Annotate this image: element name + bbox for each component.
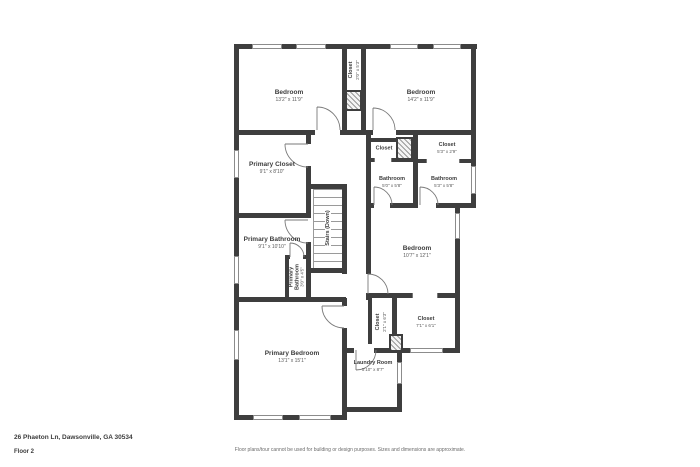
- room-label-primary-bedroom: Primary Bedroom 13'1" x 15'1": [265, 350, 320, 364]
- window: [252, 44, 282, 49]
- wall: [396, 130, 476, 135]
- wall: [361, 44, 366, 134]
- wall: [311, 268, 346, 273]
- window: [253, 415, 283, 420]
- closet-opening: [426, 159, 460, 163]
- wall: [342, 328, 347, 420]
- wall: [366, 203, 371, 274]
- window: [410, 348, 443, 353]
- disclaimer-text: Floor plans/tour cannot be used for buil…: [0, 447, 700, 453]
- wall: [413, 135, 418, 203]
- floorplan-page: Stairs (Down): [0, 0, 700, 467]
- window: [234, 150, 239, 178]
- wall: [306, 166, 311, 218]
- room-label-bedroom-top-left: Bedroom 13'2" x 11'9": [275, 89, 304, 103]
- wall: [368, 298, 372, 344]
- window: [433, 44, 461, 49]
- window: [234, 256, 239, 284]
- window: [296, 44, 326, 49]
- room-label-closet-small: Closet: [376, 146, 393, 153]
- shaft-hatch: [345, 90, 362, 111]
- wall: [342, 298, 347, 306]
- wall: [390, 203, 418, 208]
- room-label-closet-narrow: Closet 2'1" x 6'3": [375, 312, 388, 332]
- room-label-bathroom-left: Bathroom 5'0" x 5'8": [379, 176, 405, 189]
- wall: [342, 184, 347, 274]
- room-label-primary-bathroom: Primary Bathroom 9'1" x 10'10": [244, 236, 301, 250]
- window: [390, 44, 418, 49]
- room-label-closet-top: Closet 2'0" x 5'3": [348, 60, 361, 80]
- wall: [234, 44, 239, 420]
- window: [299, 415, 331, 420]
- wall: [234, 130, 315, 135]
- room-label-primary-closet: Primary Closet 9'1" x 8'10": [249, 161, 295, 175]
- wall: [366, 293, 412, 298]
- address-text: 26 Phaeton Ln, Dawsonville, GA 30534: [14, 434, 133, 441]
- window: [397, 362, 402, 384]
- shaft-hatch: [389, 334, 403, 352]
- window: [455, 213, 460, 239]
- shaft-hatch: [396, 137, 413, 160]
- room-label-bedroom-top-right: Bedroom 14'2" x 11'9": [407, 89, 436, 103]
- wall: [306, 130, 311, 144]
- wall: [234, 213, 311, 218]
- stairs-label: Stairs (Down): [325, 208, 331, 247]
- room-label-primary-bathroom-wc: Primary Bathroom 3'0" x 4'5": [288, 254, 305, 300]
- closet-opening: [374, 158, 392, 162]
- window: [234, 330, 239, 360]
- wall: [342, 407, 402, 412]
- wall: [366, 135, 371, 203]
- closet-opening: [412, 293, 438, 298]
- wall: [346, 348, 354, 353]
- room-label-bedroom-right: Bedroom 10'7" x 12'1": [403, 245, 432, 259]
- room-label-laundry: Laundry Room 5'10" x 8'7": [354, 360, 393, 373]
- room-label-closet-hall: Closet 5'3" x 2'9": [437, 142, 457, 155]
- room-label-closet-bottom: Closet 7'1" x 6'1": [416, 316, 436, 329]
- window: [471, 166, 476, 194]
- wall: [342, 44, 347, 134]
- wall: [438, 293, 458, 298]
- wall: [369, 138, 397, 142]
- room-label-bathroom-right: Bathroom 5'3" x 5'8": [431, 176, 457, 189]
